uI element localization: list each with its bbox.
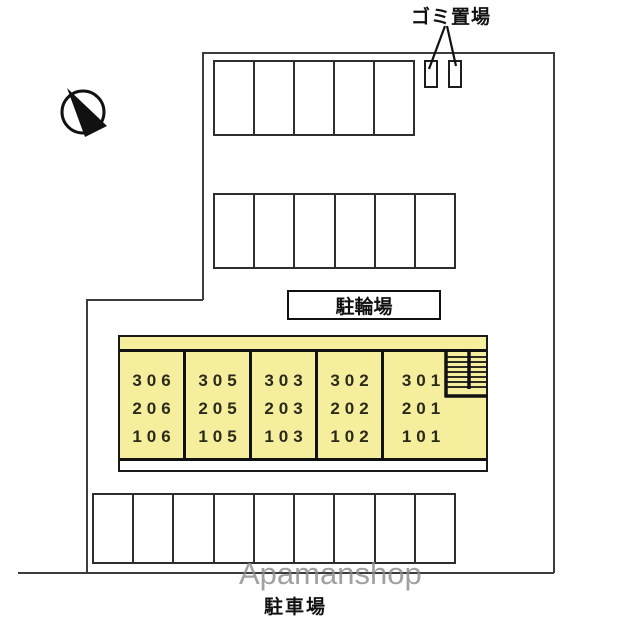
bicycle-parking-label: 駐輪場 (335, 292, 392, 319)
parking-stall (215, 495, 255, 562)
parking-stall (94, 495, 134, 562)
room-number: 201 (397, 395, 445, 423)
room-number: 103 (259, 423, 307, 451)
parking-stall (174, 495, 214, 562)
apartment-building: 306 206 106 305 205 105 303 203 103 302 … (118, 335, 488, 472)
unit-cell: 303 203 103 (252, 352, 318, 458)
garbage-bin (448, 60, 462, 88)
room-number: 303 (259, 367, 307, 395)
parking-stall (376, 495, 416, 562)
unit-cell: 302 202 102 (318, 352, 384, 458)
parking-stall (215, 62, 255, 134)
room-number: 102 (325, 423, 373, 451)
building-lower-corridor (120, 458, 486, 470)
room-number: 205 (193, 395, 241, 423)
garbage-area-label: ゴミ置場 (411, 2, 491, 29)
parking-stall (215, 195, 255, 267)
room-number: 203 (259, 395, 307, 423)
room-number: 106 (127, 423, 175, 451)
parking-stall (255, 195, 295, 267)
parking-stall (295, 195, 335, 267)
parking-stall (255, 62, 295, 134)
parking-stall (134, 495, 174, 562)
unit-row: 306 206 106 305 205 105 303 203 103 302 … (120, 349, 486, 461)
unit-cell: 305 205 105 (186, 352, 252, 458)
parking-row-bottom (92, 493, 456, 564)
parking-stall (416, 495, 454, 562)
parking-stall (375, 62, 413, 134)
parking-stall (255, 495, 295, 562)
parking-stall (376, 195, 416, 267)
room-number: 301 (397, 367, 445, 395)
car-parking-label: 駐車場 (264, 592, 327, 619)
parking-row-top (213, 60, 415, 136)
watermark-text: Apamanshop (239, 556, 422, 592)
bicycle-parking-label-box: 駐輪場 (287, 290, 441, 320)
parking-row-middle (213, 193, 456, 269)
parking-stall (336, 195, 376, 267)
site-plan-diagram: 306 206 106 305 205 105 303 203 103 302 … (0, 0, 640, 640)
room-number: 302 (325, 367, 373, 395)
parking-stall (416, 195, 454, 267)
room-number: 202 (325, 395, 373, 423)
parking-stall (335, 495, 375, 562)
room-number: 105 (193, 423, 241, 451)
room-number: 206 (127, 395, 175, 423)
room-number: 101 (397, 423, 445, 451)
room-number: 305 (193, 367, 241, 395)
parking-stall (335, 62, 375, 134)
unit-cell: 301 201 101 (384, 352, 486, 458)
compass-north-icon (62, 88, 107, 137)
parking-stall (295, 495, 335, 562)
parking-stall (295, 62, 335, 134)
garbage-bin (424, 60, 438, 88)
room-number: 306 (127, 367, 175, 395)
unit-cell: 306 206 106 (120, 352, 186, 458)
